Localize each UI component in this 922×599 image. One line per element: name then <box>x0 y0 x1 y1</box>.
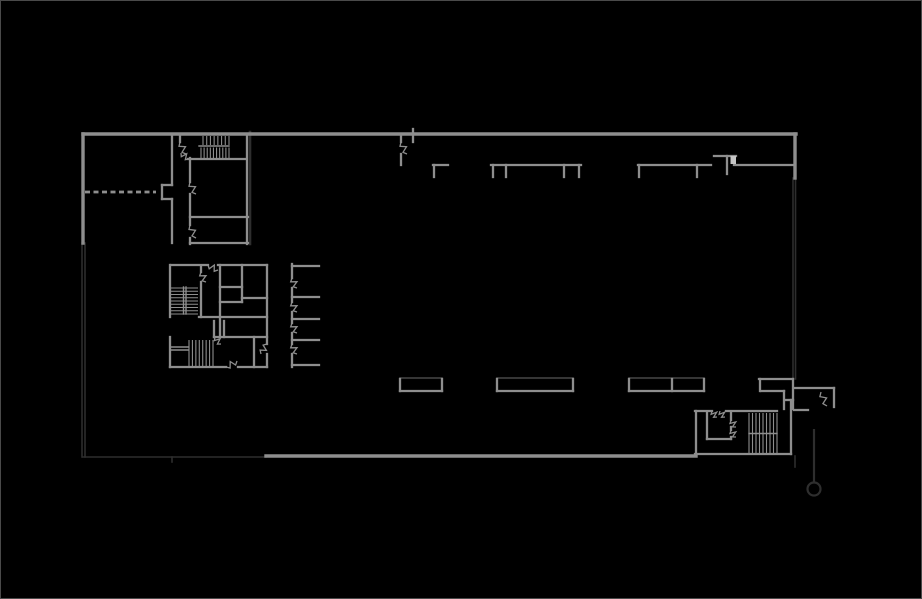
door-swing-icon <box>260 344 267 354</box>
door-swing-icon <box>226 361 237 368</box>
layer-stair-treads <box>171 136 777 453</box>
door-swing-icon <box>208 265 218 271</box>
layer-interior-walls <box>162 129 834 454</box>
layer-utility-shaft <box>731 156 737 164</box>
door-swing-icon <box>400 142 407 154</box>
door-swing-icon <box>189 182 196 194</box>
door-swing-icon <box>291 344 297 354</box>
door-swing-icon <box>181 153 189 160</box>
layer-survey-marker <box>808 429 821 496</box>
floor-plan-svg <box>1 1 922 599</box>
door-swing-icon <box>719 411 725 417</box>
door-swing-icon <box>291 302 297 312</box>
door-swing-icon <box>189 225 196 238</box>
layer-door-swings <box>179 142 827 437</box>
drawing-canvas <box>0 0 922 599</box>
utility-shaft-block <box>731 156 737 164</box>
door-swing-icon <box>291 278 297 288</box>
door-swing-icon <box>200 272 206 282</box>
door-swing-icon <box>291 323 297 333</box>
door-swing-icon <box>711 411 717 417</box>
survey-marker-circle <box>808 483 821 496</box>
door-swing-icon <box>179 142 186 154</box>
door-swing-icon <box>820 392 827 406</box>
